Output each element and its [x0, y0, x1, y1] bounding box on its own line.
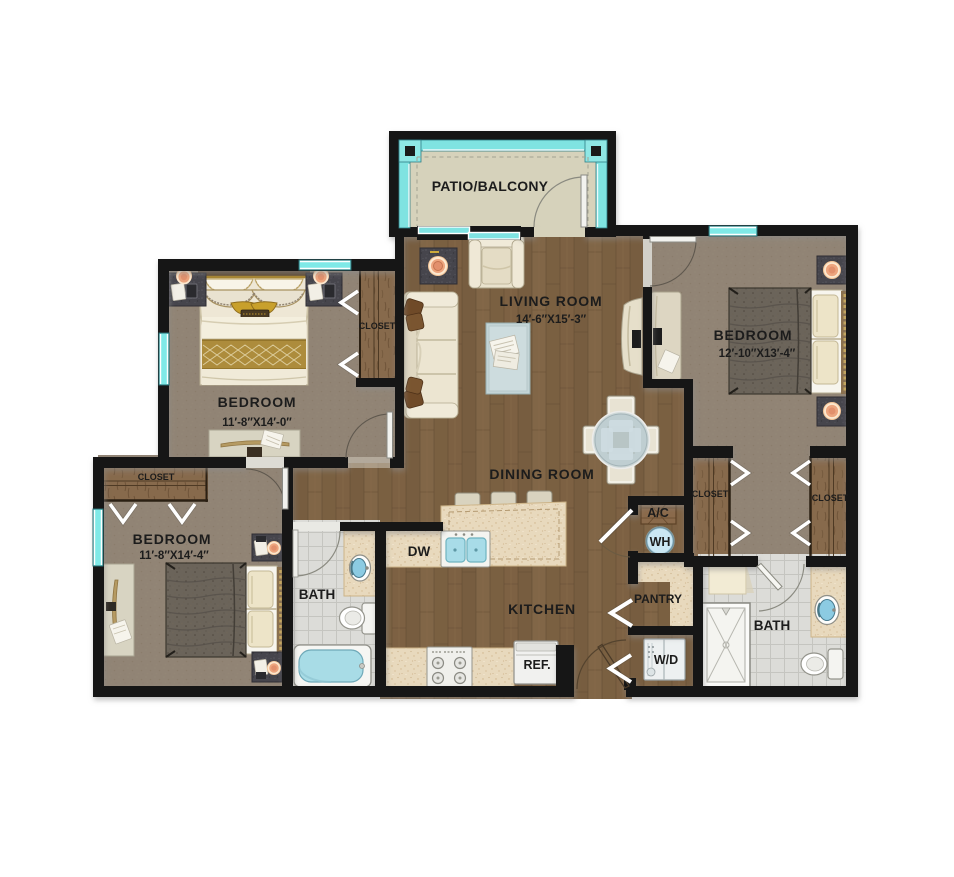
svg-text:11′-8″X14′-4″: 11′-8″X14′-4″	[139, 550, 209, 562]
svg-text:KITCHEN: KITCHEN	[508, 601, 576, 617]
svg-text:CLOSET: CLOSET	[138, 472, 175, 482]
svg-text:BEDROOM: BEDROOM	[218, 394, 297, 410]
svg-text:LIVING ROOM: LIVING ROOM	[500, 293, 603, 309]
svg-text:BATH: BATH	[299, 587, 336, 602]
svg-text:CLOSET: CLOSET	[812, 493, 849, 503]
svg-text:DW: DW	[408, 544, 431, 559]
svg-text:CLOSET: CLOSET	[692, 489, 729, 499]
svg-text:CLOSET: CLOSET	[359, 321, 396, 331]
svg-text:W/D: W/D	[654, 653, 678, 667]
svg-text:12′-10″X13′-4″: 12′-10″X13′-4″	[719, 348, 796, 360]
svg-text:DINING ROOM: DINING ROOM	[489, 466, 594, 482]
svg-text:PATIO/BALCONY: PATIO/BALCONY	[432, 178, 549, 194]
svg-text:11′-8″X14′-0″: 11′-8″X14′-0″	[222, 417, 292, 429]
svg-text:WH: WH	[650, 535, 671, 549]
svg-text:REF.: REF.	[523, 658, 550, 672]
svg-text:BEDROOM: BEDROOM	[133, 531, 212, 547]
svg-text:BEDROOM: BEDROOM	[714, 327, 793, 343]
svg-text:A/C: A/C	[647, 506, 669, 520]
svg-text:PANTRY: PANTRY	[634, 592, 682, 606]
svg-text:14′-6″X15′-3″: 14′-6″X15′-3″	[516, 314, 587, 326]
svg-text:BATH: BATH	[754, 618, 791, 633]
